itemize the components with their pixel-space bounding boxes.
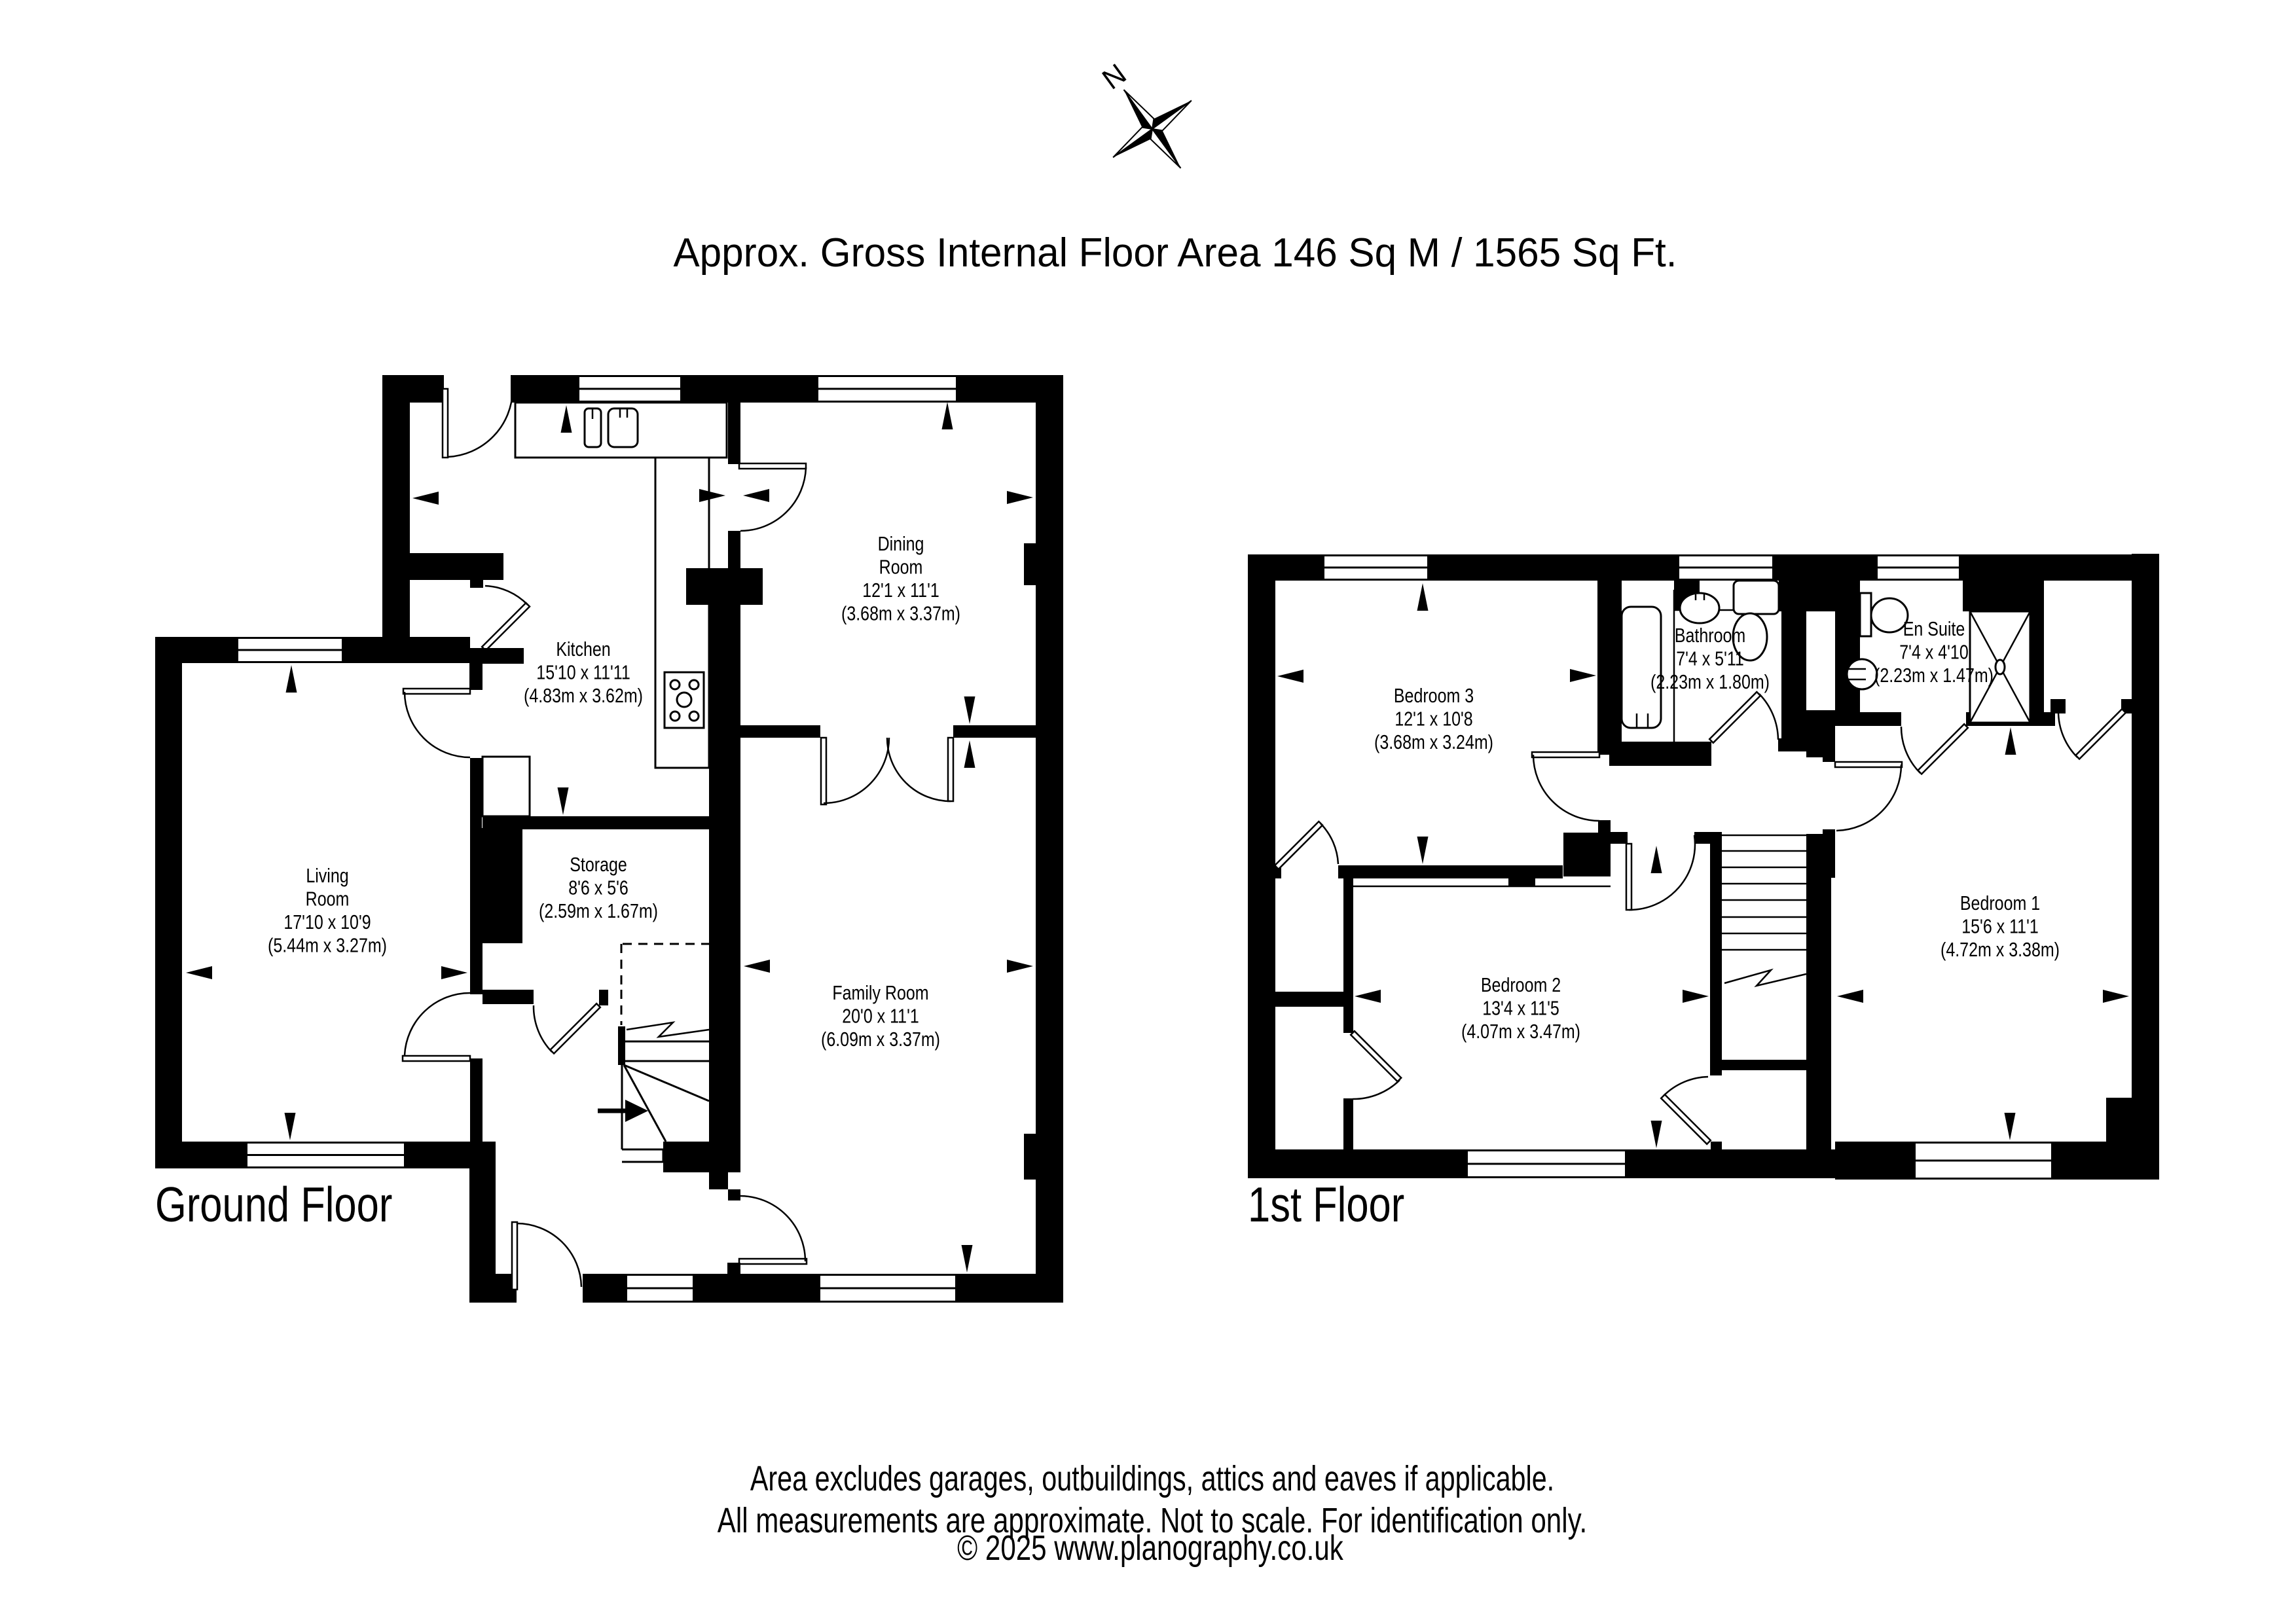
svg-text:Approx. Gross Internal Floor A: Approx. Gross Internal Floor Area 146 Sq… — [674, 230, 1677, 276]
svg-text:Ground Floor: Ground Floor — [155, 1177, 392, 1232]
svg-text:Area excludes garages, outbuil: Area excludes garages, outbuildings, att… — [750, 1459, 1554, 1499]
svg-text:© 2025 www.planography.co.uk: © 2025 www.planography.co.uk — [957, 1528, 1343, 1568]
svg-text:1st Floor: 1st Floor — [1248, 1177, 1404, 1232]
